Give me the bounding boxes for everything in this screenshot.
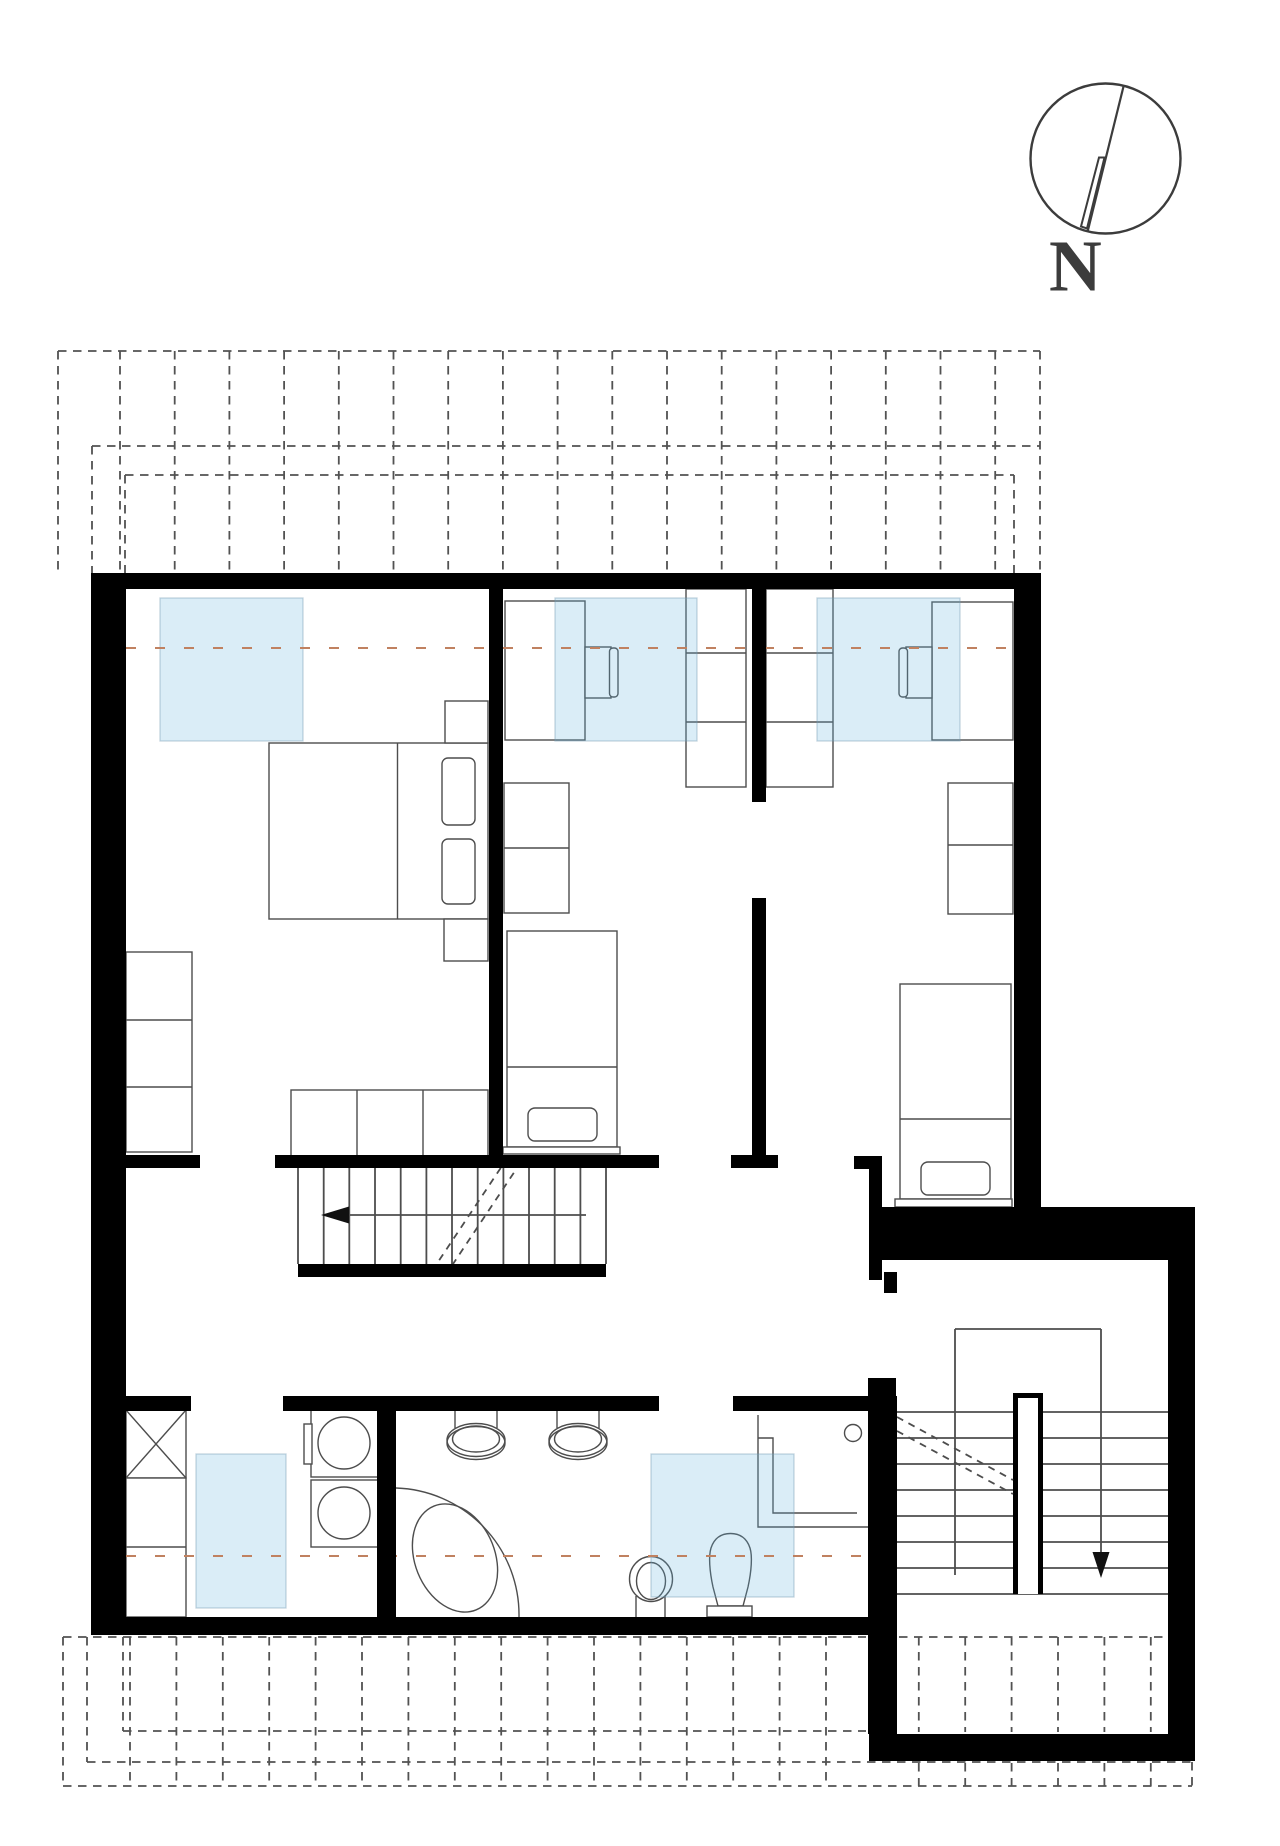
svg-text:N: N bbox=[1049, 226, 1102, 307]
